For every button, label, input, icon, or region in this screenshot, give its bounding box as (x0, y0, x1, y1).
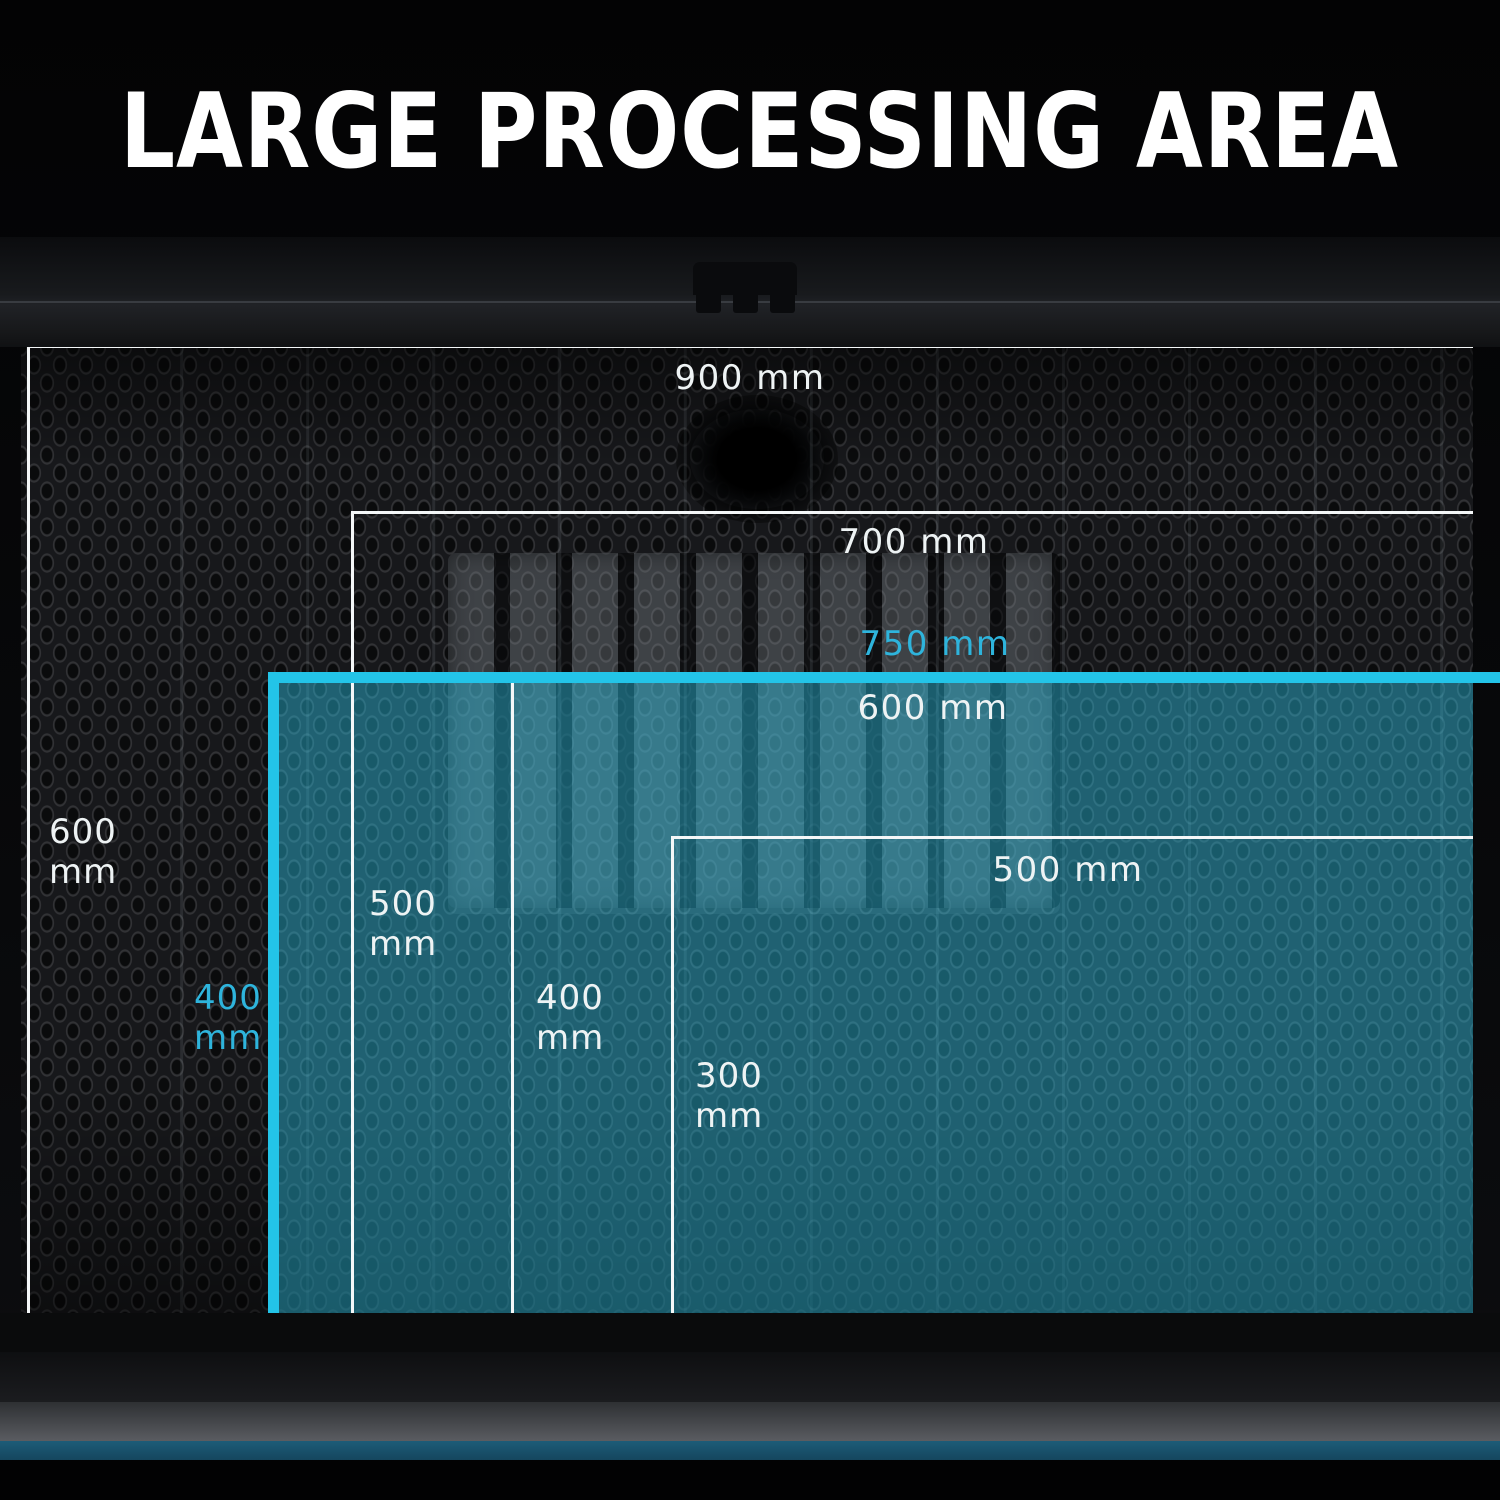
area-rect-750x400-left-border (268, 672, 279, 1313)
height-label-400mm-highlight: 400 mm (194, 978, 262, 1058)
width-label-600mm: 600 mm (813, 688, 1053, 728)
height-unit: mm (369, 924, 437, 964)
machine-front-gray-band (0, 1402, 1500, 1441)
machine-front-shadow-band (0, 1313, 1500, 1352)
processing-area-poster: LARGE PROCESSING AREA 900 mm 700 mm 750 … (0, 0, 1500, 1500)
machine-base-shadow (0, 1460, 1500, 1500)
height-value: 400 (194, 978, 262, 1018)
height-value: 400 (536, 978, 604, 1018)
height-value: 600 (49, 812, 117, 852)
width-label-750mm-highlight: 750 mm (815, 624, 1055, 664)
camera-mount-tab (693, 262, 797, 295)
height-unit: mm (49, 852, 117, 892)
area-rect-500x300 (671, 836, 1473, 1313)
height-label-400mm: 400 mm (536, 978, 604, 1058)
height-label-300mm: 300 mm (695, 1056, 763, 1136)
height-label-600mm: 600 mm (49, 812, 117, 892)
page-title: LARGE PROCESSING AREA (120, 72, 1380, 192)
height-unit: mm (536, 1018, 604, 1058)
machine-lid (0, 237, 1500, 347)
height-unit: mm (194, 1018, 262, 1058)
height-value: 500 (369, 884, 437, 924)
width-label-900mm: 900 mm (630, 358, 870, 398)
camera-mount-leg (696, 293, 721, 313)
width-label-700mm: 700 mm (794, 522, 1034, 562)
height-label-500mm: 500 mm (369, 884, 437, 964)
area-rect-750x400-top-border (268, 672, 1500, 683)
laser-bed-photo (21, 347, 1473, 1313)
front-accent-strip (0, 1441, 1500, 1460)
machine-front-dark-band (0, 1352, 1500, 1402)
height-unit: mm (695, 1096, 763, 1136)
camera-mount-leg (733, 293, 758, 313)
height-value: 300 (695, 1056, 763, 1096)
camera-mount-leg (770, 293, 795, 313)
width-label-500mm: 500 mm (948, 850, 1188, 890)
